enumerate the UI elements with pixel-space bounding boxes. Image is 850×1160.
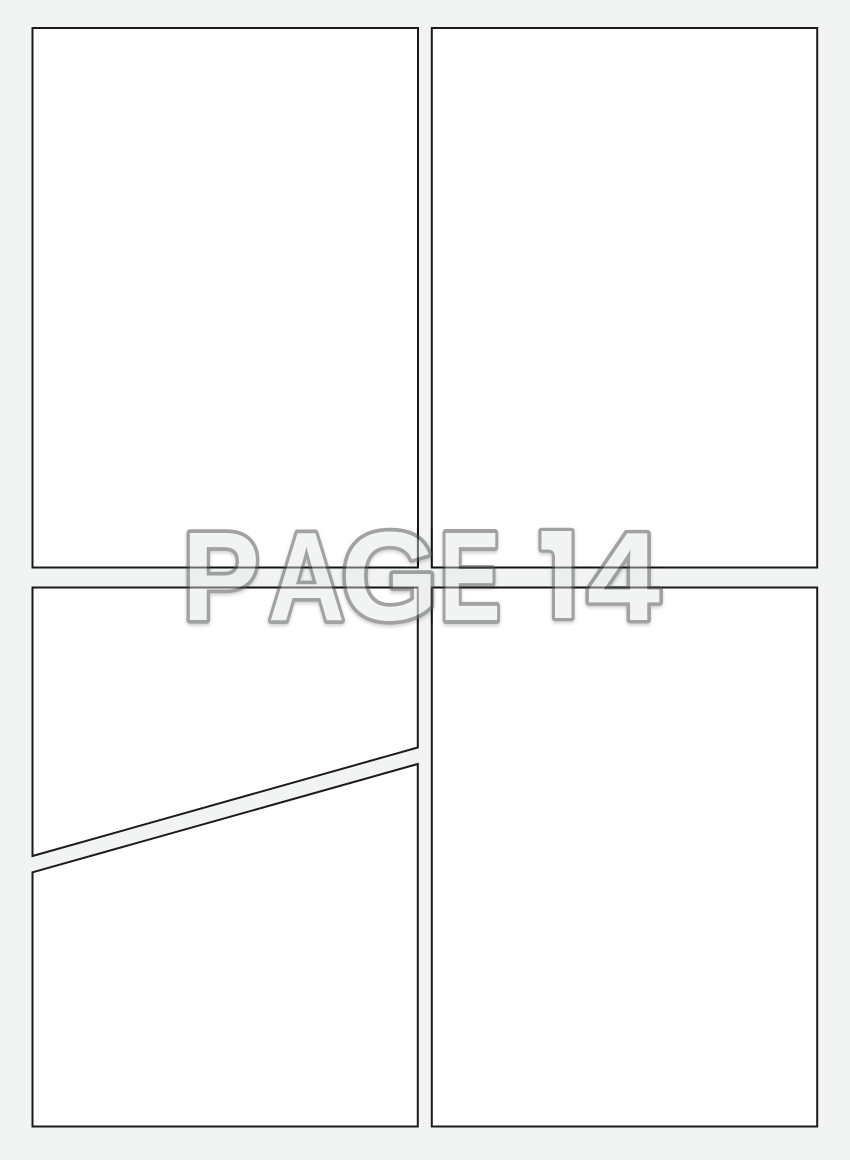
svg-text:G: G [341, 506, 439, 647]
svg-text:E: E [439, 507, 500, 647]
svg-text:A: A [268, 506, 344, 647]
svg-text:4: 4 [587, 506, 660, 647]
svg-text:P: P [182, 506, 260, 647]
